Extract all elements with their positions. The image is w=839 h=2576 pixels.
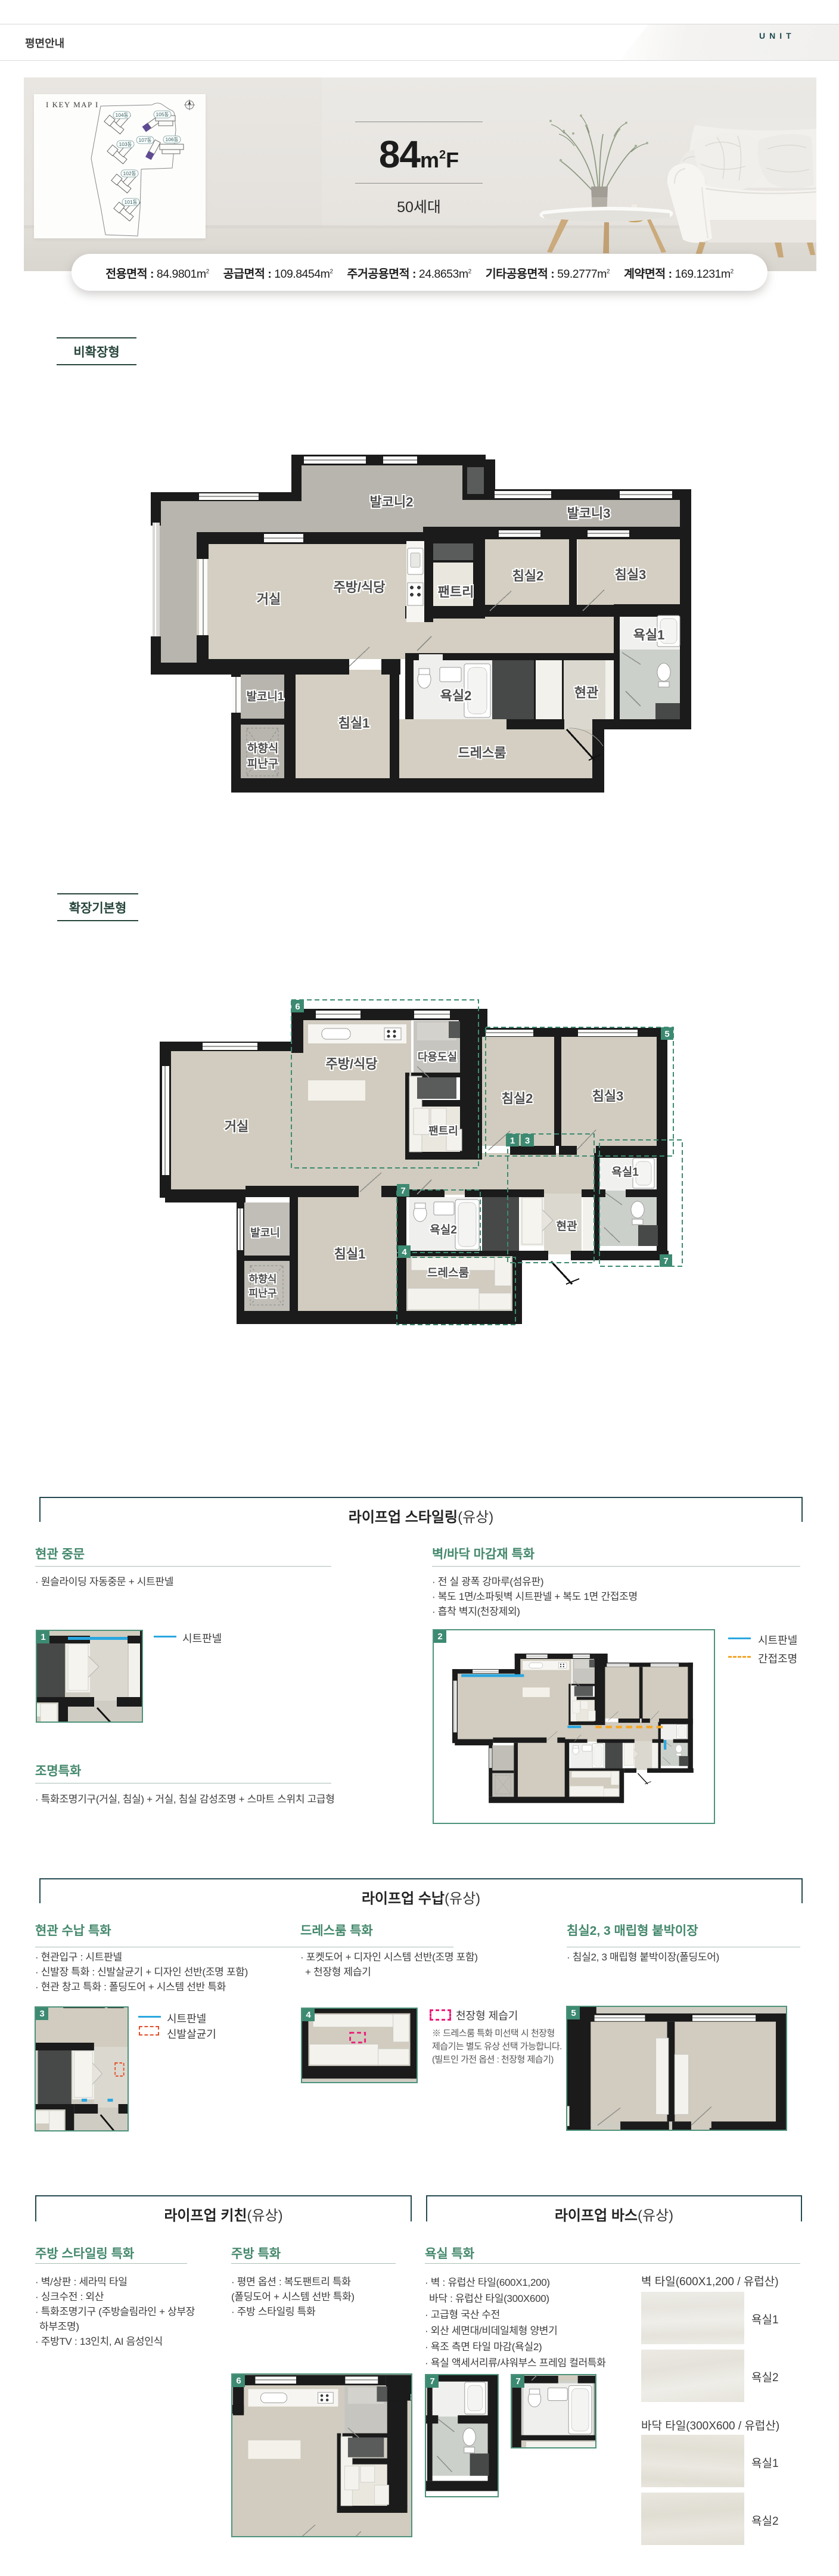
- svg-text:침실2: 침실2: [512, 568, 544, 583]
- svg-text:드레스룸: 드레스룸: [458, 745, 506, 760]
- svg-text:104동: 104동: [115, 112, 128, 118]
- svg-text:거실: 거실: [257, 592, 281, 607]
- svg-text:4: 4: [402, 1247, 407, 1257]
- svg-text:거실: 거실: [225, 1119, 248, 1134]
- svg-text:욕실1: 욕실1: [633, 627, 665, 642]
- svg-text:침실2: 침실2: [502, 1091, 533, 1106]
- svg-text:1: 1: [510, 1136, 515, 1146]
- svg-text:침실1: 침실1: [334, 1247, 366, 1261]
- svg-text:주방/식당: 주방/식당: [333, 580, 385, 595]
- svg-text:팬트리: 팬트리: [428, 1125, 458, 1137]
- svg-text:발코니: 발코니: [250, 1227, 280, 1239]
- svg-text:5: 5: [664, 1029, 669, 1039]
- svg-text:피난구: 피난구: [247, 757, 278, 770]
- svg-text:하향식: 하향식: [247, 742, 278, 755]
- svg-text:팬트리: 팬트리: [438, 585, 474, 599]
- svg-text:101동: 101동: [124, 199, 137, 205]
- svg-text:침실3: 침실3: [615, 567, 647, 582]
- svg-text:6: 6: [295, 1002, 300, 1012]
- svg-text:침실3: 침실3: [592, 1089, 624, 1104]
- svg-text:욕실2: 욕실2: [430, 1223, 457, 1236]
- svg-text:현관: 현관: [574, 685, 598, 700]
- svg-text:I KEY MAP I: I KEY MAP I: [46, 100, 99, 109]
- svg-text:7: 7: [663, 1256, 668, 1266]
- svg-text:발코니2: 발코니2: [370, 495, 414, 509]
- svg-text:3: 3: [525, 1136, 530, 1146]
- svg-text:발코니1: 발코니1: [246, 690, 284, 703]
- svg-text:욕실1: 욕실1: [611, 1166, 639, 1179]
- svg-text:드레스룸: 드레스룸: [427, 1266, 469, 1279]
- svg-text:7: 7: [400, 1186, 405, 1196]
- svg-text:하향식: 하향식: [249, 1273, 277, 1285]
- svg-text:103동: 103동: [119, 141, 132, 147]
- svg-text:107동: 107동: [138, 137, 151, 143]
- svg-text:침실1: 침실1: [338, 716, 370, 731]
- svg-text:주방/식당: 주방/식당: [325, 1056, 377, 1071]
- svg-text:욕실2: 욕실2: [440, 688, 472, 703]
- svg-text:102동: 102동: [123, 170, 136, 176]
- svg-text:현관: 현관: [557, 1220, 577, 1233]
- svg-text:피난구: 피난구: [249, 1288, 277, 1299]
- svg-text:발코니3: 발코니3: [567, 506, 611, 521]
- svg-text:105동: 105동: [156, 111, 169, 117]
- svg-text:다용도실: 다용도실: [418, 1051, 457, 1063]
- svg-text:106동: 106동: [165, 136, 178, 142]
